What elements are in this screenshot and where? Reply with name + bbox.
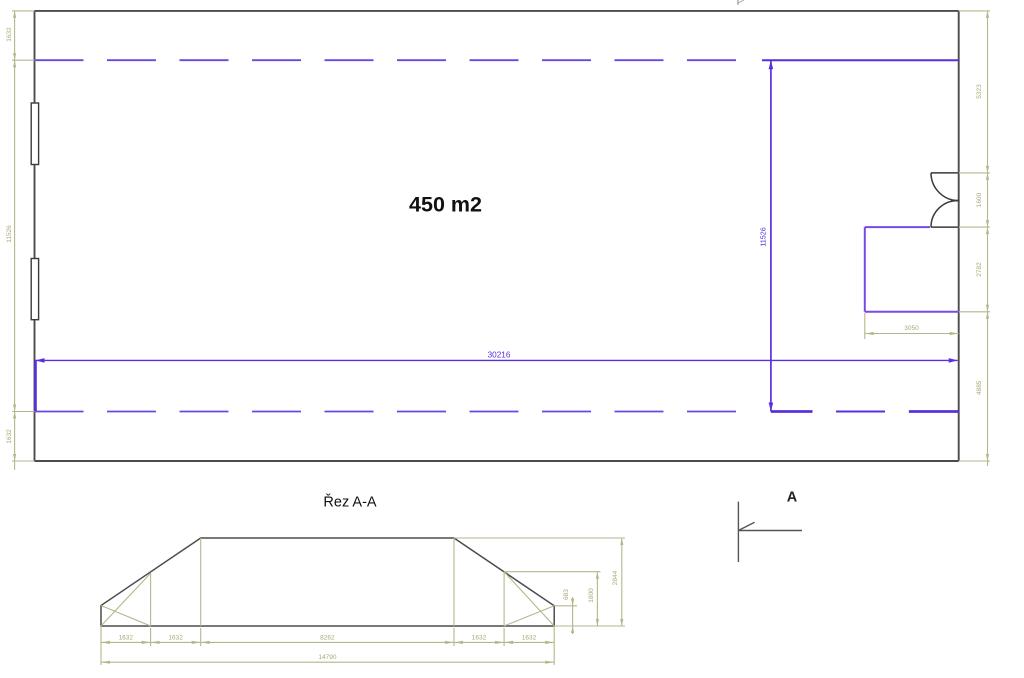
svg-text:14790: 14790: [318, 654, 336, 661]
svg-text:1632: 1632: [168, 635, 183, 642]
svg-text:11526: 11526: [6, 225, 13, 243]
svg-text:2782: 2782: [976, 262, 983, 277]
svg-text:Řez A-A: Řez A-A: [323, 493, 377, 510]
svg-text:450 m2: 450 m2: [409, 192, 482, 216]
svg-text:1632: 1632: [472, 635, 487, 642]
svg-text:1600: 1600: [976, 192, 983, 207]
svg-text:11526: 11526: [759, 227, 768, 246]
svg-text:1632: 1632: [6, 429, 13, 444]
svg-text:3050: 3050: [904, 325, 919, 332]
svg-text:1632: 1632: [6, 27, 13, 42]
svg-text:683: 683: [563, 589, 570, 600]
svg-text:8262: 8262: [320, 635, 335, 642]
svg-text:4885: 4885: [976, 380, 983, 395]
svg-text:1800: 1800: [588, 588, 595, 603]
svg-text:A: A: [787, 490, 798, 506]
svg-text:30216: 30216: [488, 351, 511, 360]
svg-text:1632: 1632: [522, 635, 537, 642]
svg-text:5323: 5323: [976, 84, 983, 99]
svg-text:2844: 2844: [612, 570, 619, 585]
svg-text:1632: 1632: [119, 635, 134, 642]
